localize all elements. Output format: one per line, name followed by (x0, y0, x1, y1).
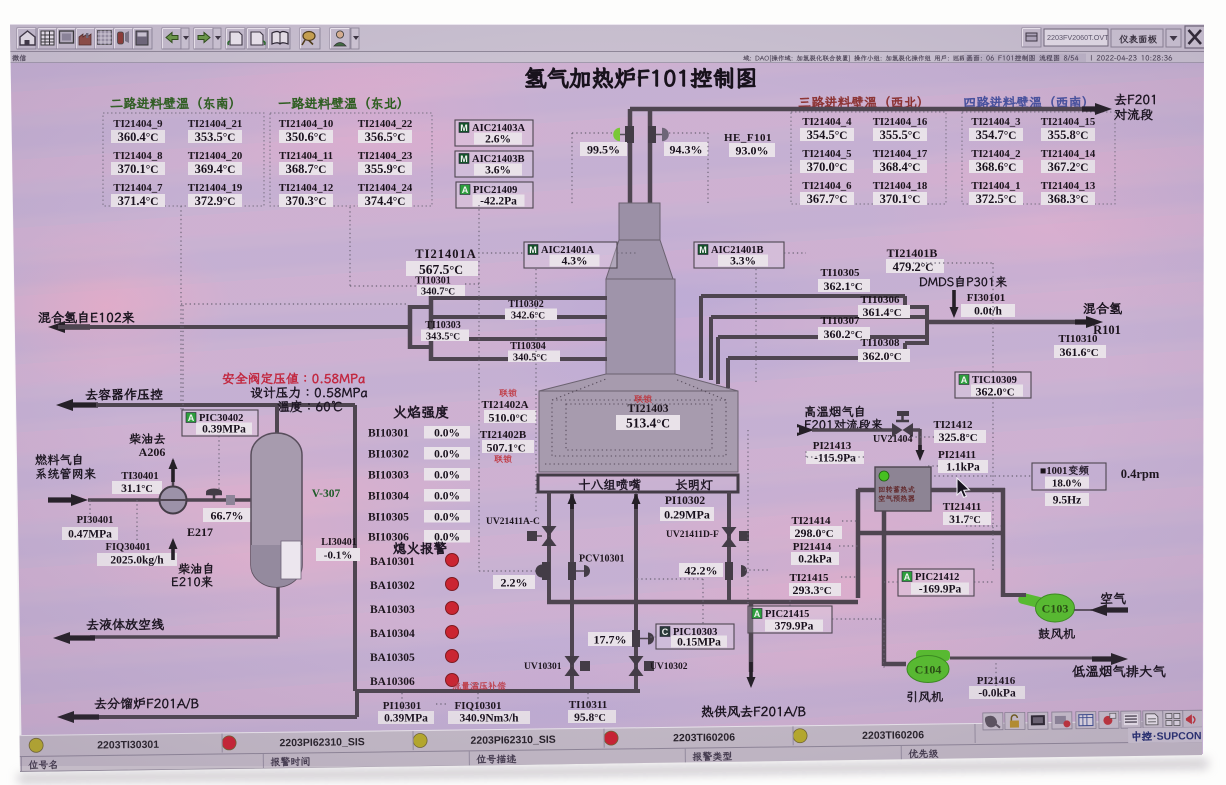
svg-text:293.3°C: 293.3°C (792, 583, 831, 597)
svg-text:0.0%: 0.0% (434, 511, 460, 523)
svg-text:0.2kPa: 0.2kPa (798, 554, 832, 566)
svg-text:99.5%: 99.5% (587, 142, 620, 156)
svg-text:-169.9Pa: -169.9Pa (919, 584, 962, 596)
svg-text:18.0%: 18.0% (1052, 477, 1082, 489)
svg-text:PIC21415: PIC21415 (765, 609, 809, 620)
svg-text:368.6°C: 368.6°C (976, 160, 1017, 174)
svg-text:TI21404_22: TI21404_22 (358, 118, 413, 130)
svg-text:355.9°C: 355.9°C (365, 162, 406, 176)
svg-text:2.6%: 2.6% (485, 134, 511, 146)
svg-text:4.3%: 4.3% (562, 256, 588, 268)
svg-text:TI21402A: TI21402A (481, 399, 528, 411)
svg-text:362.0°C: 362.0°C (862, 349, 901, 363)
svg-text:42.2%: 42.2% (685, 563, 718, 577)
svg-text:372.9°C: 372.9°C (195, 194, 236, 208)
svg-text:UV10302: UV10302 (650, 662, 688, 672)
svg-text:355.5°C: 355.5°C (880, 128, 921, 142)
svg-text:361.4°C: 361.4°C (862, 305, 901, 319)
svg-text:M: M (460, 123, 468, 133)
svg-text:A: A (188, 413, 195, 423)
svg-text:PI30401: PI30401 (77, 515, 114, 526)
svg-text:A: A (961, 375, 968, 385)
svg-text:360.2°C: 360.2°C (823, 327, 862, 341)
svg-text:325.8°C: 325.8°C (938, 430, 977, 444)
svg-text:369.4°C: 369.4°C (195, 162, 236, 176)
svg-text:TI10310: TI10310 (1058, 333, 1098, 345)
svg-text:0.47MPa: 0.47MPa (68, 529, 112, 541)
svg-text:V-307: V-307 (312, 488, 341, 500)
svg-text:2203TI60206: 2203TI60206 (673, 732, 735, 745)
svg-text:31.7°C: 31.7°C (949, 514, 981, 526)
svg-text:C104: C104 (915, 663, 942, 677)
svg-text:TI10303: TI10303 (425, 320, 461, 331)
svg-text:TI21404_18: TI21404_18 (873, 180, 928, 192)
svg-text:PI21414: PI21414 (793, 541, 832, 553)
svg-text:BI10304: BI10304 (368, 491, 409, 503)
svg-text:2203FV2060T.OVT: 2203FV2060T.OVT (1047, 33, 1109, 42)
svg-text:0.4rpm: 0.4rpm (1121, 467, 1160, 481)
svg-text:TI10311: TI10311 (569, 699, 608, 711)
svg-text:BA10306: BA10306 (370, 676, 415, 688)
svg-text:0.29MPa: 0.29MPa (664, 507, 710, 521)
svg-text:2203TI60206: 2203TI60206 (862, 729, 924, 742)
svg-text:E217: E217 (187, 525, 213, 539)
svg-text:370.0°C: 370.0°C (807, 160, 848, 174)
svg-text:TI21404_17: TI21404_17 (873, 148, 928, 160)
svg-text:TI10301: TI10301 (415, 276, 451, 287)
svg-text:TI10308: TI10308 (860, 337, 900, 349)
svg-text:UV21411D-F: UV21411D-F (666, 530, 719, 540)
svg-text:■1001: ■1001 (1040, 465, 1067, 477)
svg-text:TI21403: TI21403 (628, 403, 669, 415)
svg-text:BA10304: BA10304 (370, 628, 415, 640)
svg-text:0.0%: 0.0% (434, 490, 460, 502)
svg-text:340.9Nm3/h: 340.9Nm3/h (459, 713, 519, 725)
svg-text:PI10302: PI10302 (665, 495, 706, 507)
svg-text:368.4°C: 368.4°C (880, 160, 921, 174)
svg-text:3.3%: 3.3% (730, 256, 756, 268)
svg-text:TI21404_14: TI21404_14 (1041, 148, 1096, 160)
svg-text:66.7%: 66.7% (211, 508, 244, 522)
svg-text:TI21404_10: TI21404_10 (279, 118, 334, 130)
svg-text:TI21404_4: TI21404_4 (802, 116, 852, 128)
svg-text:BA10301: BA10301 (370, 556, 415, 568)
svg-text:-115.9Pa: -115.9Pa (814, 453, 856, 465)
svg-text:TI21404_7: TI21404_7 (113, 182, 163, 194)
svg-text:TI21404_1: TI21404_1 (971, 180, 1020, 192)
svg-text:C103: C103 (1042, 602, 1069, 616)
svg-text:TI21402B: TI21402B (480, 429, 527, 441)
svg-text:94.3%: 94.3% (670, 142, 703, 156)
svg-text:TI21404_20: TI21404_20 (188, 150, 243, 162)
svg-text:0.0%: 0.0% (434, 531, 460, 543)
svg-text:479.2°C: 479.2°C (893, 260, 934, 274)
svg-text:2203TI30301: 2203TI30301 (97, 739, 159, 752)
svg-text:HE_F101: HE_F101 (724, 132, 772, 144)
svg-text:340.5°C: 340.5°C (513, 353, 547, 364)
svg-text:3.6%: 3.6% (485, 165, 511, 177)
svg-text:BA10305: BA10305 (370, 652, 415, 664)
svg-text:-0.1%: -0.1% (324, 549, 352, 561)
svg-text:·SUPCON: ·SUPCON (1153, 730, 1202, 743)
svg-text:LI30401: LI30401 (321, 537, 357, 548)
svg-text:TI10304: TI10304 (510, 341, 546, 352)
svg-text:2203PI62310_SIS: 2203PI62310_SIS (470, 734, 555, 747)
svg-text:31.1°C: 31.1°C (121, 483, 153, 495)
svg-text:TI21404_5: TI21404_5 (802, 148, 851, 160)
svg-text:A: A (904, 572, 911, 582)
svg-text:PI21413: PI21413 (813, 440, 852, 452)
svg-text:TI21404_3: TI21404_3 (971, 116, 1021, 128)
svg-text:BI10301: BI10301 (368, 428, 409, 440)
svg-text:0.39MPa: 0.39MPa (202, 424, 246, 436)
svg-text:C: C (662, 627, 669, 637)
svg-text:374.4°C: 374.4°C (365, 194, 406, 208)
svg-text:TI21404_8: TI21404_8 (113, 150, 163, 162)
svg-text:353.5°C: 353.5°C (195, 130, 236, 144)
svg-text:UV10301: UV10301 (524, 662, 562, 672)
svg-text:UV21411A-C: UV21411A-C (486, 517, 540, 527)
svg-text:355.8°C: 355.8°C (1048, 128, 1089, 142)
svg-text:TI21404_2: TI21404_2 (971, 148, 1020, 160)
svg-text:360.4°C: 360.4°C (118, 130, 159, 144)
svg-text:372.5°C: 372.5°C (976, 192, 1017, 206)
svg-text:BI10302: BI10302 (368, 449, 409, 461)
svg-text:TI21404_23: TI21404_23 (358, 150, 413, 162)
svg-text:TI21404_15: TI21404_15 (1041, 116, 1096, 128)
svg-text:379.9Pa: 379.9Pa (775, 621, 814, 633)
svg-text:A: A (754, 609, 761, 619)
svg-text:354.5°C: 354.5°C (807, 128, 848, 142)
svg-text:362.1°C: 362.1°C (823, 279, 862, 293)
svg-text:298.0°C: 298.0°C (794, 526, 833, 540)
svg-text:PIC21412: PIC21412 (915, 572, 959, 583)
svg-text:TI21404_11: TI21404_11 (279, 150, 333, 162)
svg-text:TI21404_24: TI21404_24 (358, 182, 413, 194)
svg-text:17.7%: 17.7% (594, 632, 627, 646)
svg-text:507.1°C: 507.1°C (486, 441, 525, 455)
svg-text:UV21404: UV21404 (873, 434, 912, 445)
svg-text:93.0%: 93.0% (736, 143, 769, 157)
svg-text:367.7°C: 367.7°C (807, 192, 848, 206)
svg-text:350.6°C: 350.6°C (286, 130, 327, 144)
svg-text:371.4°C: 371.4°C (118, 194, 159, 208)
svg-text:361.6°C: 361.6°C (1059, 345, 1098, 359)
svg-text:342.6°C: 342.6°C (511, 311, 545, 322)
svg-text:370.1°C: 370.1°C (118, 162, 159, 176)
svg-text:362.0°C: 362.0°C (975, 385, 1014, 399)
svg-text:368.7°C: 368.7°C (286, 162, 327, 176)
svg-text:0.0t/h: 0.0t/h (974, 306, 1002, 318)
svg-text:TI21404_9: TI21404_9 (113, 118, 163, 130)
svg-text:2203PI62310_SIS: 2203PI62310_SIS (279, 736, 364, 749)
svg-text:BA10303: BA10303 (370, 604, 415, 616)
svg-text:FIQ30401: FIQ30401 (106, 542, 151, 553)
svg-text:TI10302: TI10302 (508, 299, 544, 310)
svg-text:0.0%: 0.0% (434, 469, 460, 481)
svg-text:M: M (460, 154, 468, 164)
svg-text:TI10305: TI10305 (820, 267, 860, 279)
svg-text:-42.2Pa: -42.2Pa (480, 196, 517, 208)
svg-text:1.1kPa: 1.1kPa (946, 462, 980, 474)
svg-text:0.15MPa: 0.15MPa (677, 637, 721, 649)
svg-text:513.4°C: 513.4°C (626, 416, 670, 431)
svg-text:BI10306: BI10306 (368, 532, 409, 544)
svg-text:356.5°C: 356.5°C (365, 130, 406, 144)
svg-text:2.2%: 2.2% (501, 575, 528, 589)
svg-text:PI21411: PI21411 (938, 449, 976, 461)
svg-text:9.5Hz: 9.5Hz (1053, 495, 1081, 507)
svg-text:95.8°C: 95.8°C (574, 712, 606, 724)
svg-text:PCV10301: PCV10301 (579, 554, 625, 565)
svg-text:-0.0kPa: -0.0kPa (978, 688, 1016, 700)
svg-text:0.39MPa: 0.39MPa (384, 713, 428, 725)
svg-text:M: M (699, 245, 707, 255)
svg-text:BA10302: BA10302 (370, 580, 415, 592)
svg-text:TI21404_13: TI21404_13 (1041, 180, 1096, 192)
svg-text:TI21401B: TI21401B (887, 246, 938, 260)
svg-text:TI21404_6: TI21404_6 (802, 180, 852, 192)
svg-text:TI10307: TI10307 (820, 315, 860, 327)
svg-text:368.3°C: 368.3°C (1048, 192, 1089, 206)
svg-text:370.1°C: 370.1°C (880, 192, 921, 206)
svg-text:370.3°C: 370.3°C (286, 194, 327, 208)
svg-text:2025.0kg/h: 2025.0kg/h (110, 555, 164, 567)
svg-text:TI21404_19: TI21404_19 (188, 182, 243, 194)
svg-text:TI21411: TI21411 (943, 501, 982, 513)
svg-text:343.5°C: 343.5°C (426, 332, 460, 343)
svg-text:367.2°C: 367.2°C (1048, 160, 1089, 174)
svg-text:M: M (529, 245, 537, 255)
svg-text:0.0%: 0.0% (434, 427, 460, 439)
svg-text:TI21404_16: TI21404_16 (873, 116, 928, 128)
svg-text:A206: A206 (139, 445, 166, 459)
svg-text:0.0%: 0.0% (434, 448, 460, 460)
svg-text:BI10303: BI10303 (368, 470, 409, 482)
svg-text:TI21404_12: TI21404_12 (279, 182, 334, 194)
svg-text:510.0°C: 510.0°C (488, 411, 527, 425)
svg-text:A: A (462, 185, 469, 195)
svg-text:FI30101: FI30101 (967, 292, 1006, 304)
svg-text:TI30401: TI30401 (121, 471, 158, 482)
svg-text:TI21404_21: TI21404_21 (188, 118, 243, 130)
svg-text:TI21401A: TI21401A (415, 247, 476, 261)
svg-text:340.7°C: 340.7°C (421, 287, 455, 298)
svg-text:354.7°C: 354.7°C (976, 128, 1017, 142)
svg-text:BI10305: BI10305 (368, 512, 409, 524)
